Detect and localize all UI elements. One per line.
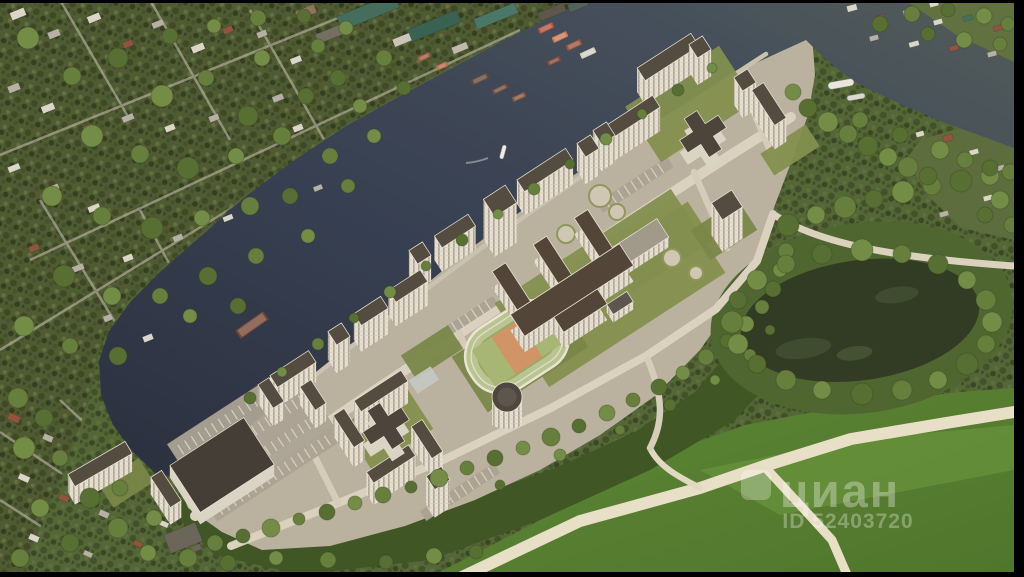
frame-bar-right [1014,0,1024,577]
watermark-id: ID 52403720 [782,510,913,533]
cian-logo-icon [741,470,771,500]
frame-bar-top [0,0,1024,3]
masterplan-scene: циан ID 52403720 [0,0,1024,577]
aerial-render: циан ID 52403720 [0,0,1024,577]
frame-bar-bottom [0,572,1024,577]
